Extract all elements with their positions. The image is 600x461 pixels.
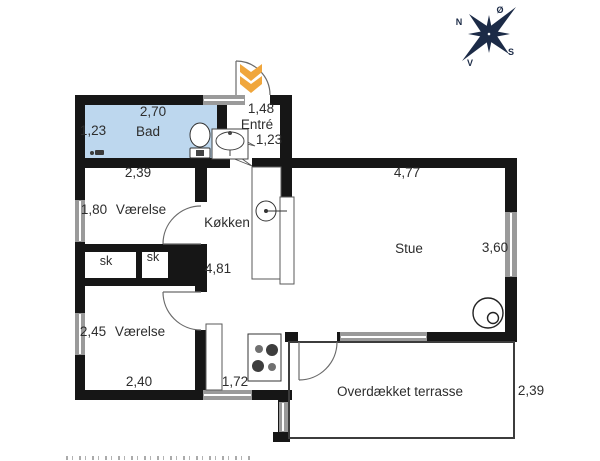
dim-stue-top: 4,77 xyxy=(394,165,420,180)
wall-interior-c xyxy=(195,330,207,400)
compass-rose-icon: N Ø S V xyxy=(456,5,516,68)
compass-label-south: S xyxy=(508,47,514,57)
dim-kitchen-south: 1,72 xyxy=(222,374,248,389)
wall-south-left xyxy=(75,390,292,400)
dim-terrasse-right: 2,39 xyxy=(518,383,544,398)
room-label-stue: Stue xyxy=(395,241,423,256)
wall-kitchen-stue-divider xyxy=(280,168,292,198)
room-label-vaerelse1: Værelse xyxy=(116,202,166,217)
window-south-kitchen xyxy=(203,390,252,400)
wall-interior-a xyxy=(195,168,207,202)
compass-label-west: V xyxy=(467,58,473,68)
wall-terrace-corner-post xyxy=(273,432,290,442)
room-label-entre: Entré xyxy=(241,117,273,132)
cropped-caption-fragment xyxy=(66,456,254,460)
dim-vaerelse2-left: 2,45 xyxy=(80,324,106,339)
dim-stue-right: 3,60 xyxy=(482,240,508,255)
wall-below-bath xyxy=(75,158,230,168)
wall-stue-south-post xyxy=(285,332,298,342)
floor-plan: N Ø S V 2,70 1,23 Bad 2,39 1,48 Entré 1,… xyxy=(0,0,600,461)
wall-bad-entry-divider xyxy=(217,105,227,131)
wall-stue-north xyxy=(252,158,517,168)
bath-sink-icon xyxy=(212,129,248,159)
room-label-bad: Bad xyxy=(136,124,160,139)
door-vaerelse-1 xyxy=(163,206,201,244)
door-vaerelse-2 xyxy=(163,292,201,330)
dim-bad-below: 2,39 xyxy=(125,165,151,180)
toilet-icon xyxy=(190,123,210,158)
dim-bad-left: 1,23 xyxy=(80,123,106,138)
entrance-arrow-icon xyxy=(240,64,262,93)
dim-vaerelse2-bottom: 2,40 xyxy=(126,374,152,389)
dim-entre-right: 1,23 xyxy=(256,132,282,147)
dim-koekken-length: 4,81 xyxy=(205,261,231,276)
compass-label-east: Ø xyxy=(496,5,503,15)
dim-vaerelse1-left: 1,80 xyxy=(81,202,107,217)
stove-icon xyxy=(248,334,281,381)
floor-plan-drawing: N Ø S V 2,70 1,23 Bad 2,39 1,48 Entré 1,… xyxy=(0,0,600,461)
dim-bad-top: 2,70 xyxy=(140,104,166,119)
dim-entre-top: 1,48 xyxy=(248,101,274,116)
window-stue-south xyxy=(340,332,427,342)
shaft-block xyxy=(168,244,207,286)
door-terrace xyxy=(299,342,337,380)
wood-stove-icon xyxy=(473,298,503,328)
window-bath-north xyxy=(203,95,245,105)
window-terrace-west xyxy=(279,402,288,432)
room-label-terrasse: Overdækket terrasse xyxy=(337,384,463,399)
room-label-vaerelse2: Værelse xyxy=(115,324,165,339)
room-label-sk1: sk xyxy=(100,254,113,268)
compass-label-north: N xyxy=(456,17,463,27)
room-label-koekken: Køkken xyxy=(204,215,250,230)
room-label-sk2: sk xyxy=(147,250,160,264)
wall-closet-divider xyxy=(136,252,142,278)
